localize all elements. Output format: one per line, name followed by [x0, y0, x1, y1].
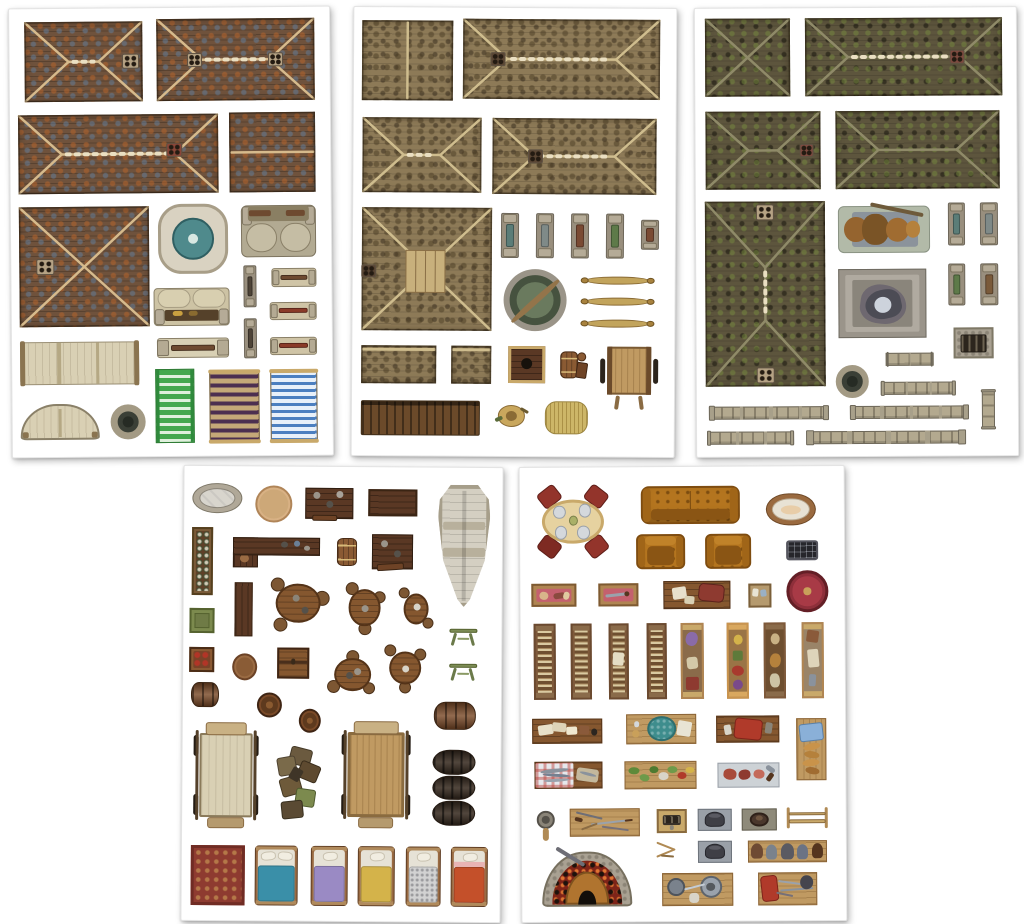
window-shutter-part: [503, 214, 516, 223]
stone-end-bench-part: [270, 304, 278, 318]
oval-stone-tub: [192, 483, 242, 513]
straw-hat-part: [519, 407, 528, 414]
moss-hip-roof-chimney-chimney: [800, 144, 814, 157]
wine-rack: [192, 527, 213, 595]
moss-hip-roof-ridges: [835, 110, 999, 189]
round-stone-well-inner: [123, 417, 134, 428]
open-wagon-part: [405, 730, 408, 820]
wooden-hatch-box-part: [521, 358, 532, 369]
shelf-with-provisions-part: [769, 653, 781, 668]
round-table-with-stools-stool: [385, 645, 397, 657]
helmet-rack-part: [781, 843, 793, 859]
stone-end-bench: [271, 268, 316, 287]
barrel-top: [257, 692, 282, 717]
covered-wagon-part: [254, 731, 257, 820]
shingle-gable-roof: [362, 20, 453, 101]
wooden-plank: [234, 582, 252, 636]
blue-striped-rug: [270, 370, 318, 442]
bookshelf-part: [536, 693, 554, 698]
vegetable-spread-table-part: [649, 766, 658, 773]
arched-canvas-awning-part: [23, 432, 29, 438]
leather-armchair-part: [638, 536, 645, 567]
metal-grate: [786, 540, 818, 560]
open-wagon-part: [342, 734, 347, 755]
green-folding-screen-part: [156, 370, 160, 442]
wooden-log-part: [580, 298, 589, 305]
bread-table-part: [804, 751, 820, 760]
helmet-rack-part: [812, 844, 823, 859]
wooden-rack-part: [787, 807, 790, 828]
shelf-with-papers-part: [809, 674, 817, 686]
stone-wall-short: [886, 353, 934, 366]
window-shutter-part: [503, 248, 516, 257]
round-stone-well: [111, 404, 146, 439]
shingle-hip-roof-chimney-chimney: [528, 149, 543, 163]
bed-fur-blanket-part: [407, 901, 440, 905]
stone-wall-long-part: [850, 405, 856, 420]
display-case-sword-part: [625, 592, 631, 598]
grindstone-part: [541, 816, 550, 824]
bookshelf: [571, 624, 592, 700]
meat-cutting-board: [717, 762, 779, 787]
wooden-handcart-part: [646, 347, 651, 395]
round-table-with-stools-top: [349, 589, 380, 626]
meat-cutting-board-part: [753, 769, 765, 779]
stone-wall-part: [790, 430, 794, 445]
round-red-table-center: [804, 588, 811, 595]
stone-end-bench-part: [279, 308, 308, 313]
bookshelf-part: [536, 626, 554, 631]
stone-end-bench-part: [308, 304, 316, 318]
wooden-handcart-part: [613, 395, 619, 410]
sword-table: [758, 872, 817, 905]
window-shutter: [243, 265, 256, 307]
green-trestle: [449, 627, 477, 647]
arched-canvas-awning-part: [92, 431, 98, 437]
wooden-handcart-part: [600, 359, 605, 384]
stone-wall-long-part: [880, 406, 884, 419]
moss-hip-roof-long-chimney: [949, 50, 964, 64]
shelf-with-potions-part: [729, 692, 747, 697]
window-shutter: [980, 263, 998, 305]
bellows-on-board: [698, 809, 732, 831]
ornate-red-rug: [191, 845, 245, 905]
fish-table-part: [542, 773, 570, 778]
covered-wagon-part: [207, 817, 243, 828]
bed-blue-blanket-part: [256, 846, 297, 850]
bronze-statue-plinth-part: [851, 212, 918, 247]
green-trestle-part: [457, 638, 469, 640]
stone-monument-part: [845, 274, 919, 332]
table-with-knitting-part: [648, 716, 677, 741]
round-stone-well: [836, 365, 869, 398]
window-shutter-part: [573, 249, 586, 258]
round-table-with-stools-mug: [346, 672, 353, 679]
purple-striped-rug: [209, 370, 260, 442]
round-wooden-table-inner: [259, 489, 288, 518]
round-table-with-stools-stool: [327, 680, 340, 693]
bread-table-part: [799, 722, 824, 742]
long-canvas-awning-part: [57, 343, 61, 384]
slate-hip-roof-small-chimney: [122, 54, 139, 69]
meat-cutting-board-part: [766, 772, 775, 782]
open-wagon-part: [347, 732, 404, 818]
crate-pile-part: [276, 755, 298, 777]
dining-table-set-part: [553, 505, 566, 518]
round-table-with-stools: [399, 588, 432, 629]
table-with-mugs-part: [327, 500, 334, 507]
shelf-with-potions-part: [731, 665, 744, 677]
stone-fire-grate-part: [962, 336, 985, 351]
table-with-mugs-part: [381, 540, 388, 547]
round-table-with-stools-stool: [345, 582, 358, 595]
covered-wagon-part: [199, 733, 253, 818]
bronze-statue-plinth-part: [844, 217, 868, 242]
shield-table-part: [707, 882, 715, 890]
kettle-on-board: [742, 808, 777, 830]
helmet-rack-part: [797, 844, 809, 858]
vegetable-spread-table-part: [667, 766, 677, 773]
shingle-awning-ridges: [361, 345, 436, 383]
bar-counter-top: [233, 537, 320, 556]
shelf-with-potions-part: [732, 680, 743, 691]
round-table-with-stools-top: [276, 583, 321, 623]
bed-purple-blanket-part: [312, 847, 347, 851]
bench-with-cushion-part: [671, 586, 687, 600]
oval-stone-tub-part: [199, 488, 236, 507]
table-with-red-cloth-part: [764, 722, 773, 734]
window-shutter-part: [953, 274, 961, 295]
bed-yellow-blanket-part: [369, 852, 384, 862]
stone-wall-long-part: [739, 407, 743, 420]
bookshelf-part: [573, 693, 590, 698]
leather-armchair-part: [714, 536, 743, 545]
stone-wall-part: [952, 381, 956, 396]
round-table-with-stools-stool: [399, 588, 410, 599]
green-folding-screen: [155, 369, 195, 443]
bronze-statue-plinth-part: [886, 218, 910, 242]
shingle-hip-roof-chimney-ridges: [492, 118, 656, 195]
barrel-top-inner: [261, 697, 277, 713]
oval-copper-tub-part: [772, 498, 811, 520]
dining-table-set-part: [542, 499, 604, 544]
stone-wall-short-part: [931, 352, 933, 367]
green-crate: [189, 608, 214, 633]
notice-board-part: [760, 589, 767, 597]
green-trestle-part: [451, 668, 458, 682]
slate-gable-roof-piece-ridges: [229, 112, 316, 193]
green-trestle-part: [457, 673, 469, 675]
sheet-red-slate-roofs: [8, 6, 334, 459]
display-case-pink: [531, 584, 576, 607]
bed-purple-blanket-part: [322, 852, 337, 862]
slate-hip-roof-long-chimney: [166, 142, 182, 157]
sword-table-part: [800, 876, 813, 890]
barrel-stack-part: [432, 801, 475, 826]
window-shutter-part: [573, 214, 586, 223]
shelf-with-provisions-part: [770, 633, 779, 645]
shingle-hip-roof-ridges: [362, 117, 481, 193]
grindstone-part: [537, 811, 555, 829]
bread-table-part: [805, 766, 820, 775]
stone-wall-long: [850, 405, 969, 419]
stone-wall-long-part: [847, 431, 852, 444]
stone-fountain-inner: [172, 217, 215, 260]
desk-with-papers-part: [552, 723, 566, 733]
shelf-with-papers-part: [804, 624, 822, 629]
sheet-tavern-storage: [180, 465, 503, 923]
shelf-with-provisions-part: [766, 691, 784, 696]
bed-red-blanket-part: [454, 862, 485, 867]
leather-sofa-part: [730, 488, 738, 522]
round-table-with-stools-stool: [399, 681, 411, 693]
shelf-with-provisions: [764, 622, 786, 698]
crate-pile-part: [278, 774, 303, 798]
desk-with-papers-part: [566, 726, 577, 735]
stone-wall-long-part: [806, 430, 814, 445]
window-shutter: [571, 213, 589, 258]
bronze-statue-plinth-part: [862, 214, 889, 246]
stone-wall-long-part: [925, 431, 930, 444]
table-with-red-cloth-part: [733, 717, 763, 741]
window-shutter-part: [951, 296, 964, 304]
leather-armchair-part: [645, 536, 676, 545]
bread-table-part: [802, 759, 819, 768]
wooden-chest-part: [279, 661, 307, 664]
stone-arm-sofa: [241, 205, 316, 258]
bench-with-cushion: [663, 581, 730, 609]
shelf-with-provisions-part: [769, 673, 780, 688]
bed-purple-blanket-part: [314, 865, 345, 902]
table-with-knitting-part: [634, 721, 639, 727]
bed-yellow-blanket-part: [359, 847, 394, 851]
window-shutter-part: [950, 236, 963, 244]
round-table-with-stools-stool: [414, 648, 426, 660]
stone-arm-sofa-part: [248, 206, 309, 222]
shelf-with-cloth-goods-part: [686, 657, 699, 670]
bed-yellow-blanket: [358, 846, 395, 906]
table-with-knitting-part: [676, 720, 692, 737]
stone-monument: [838, 269, 926, 338]
barrel-and-crates-stack-part: [577, 352, 586, 362]
sheet-interior-smithy: [519, 465, 848, 923]
stone-wall-part: [707, 431, 711, 446]
purple-striped-rug-part: [208, 369, 260, 374]
tool-table: [570, 808, 640, 836]
shingle-awning-small: [451, 346, 491, 384]
stone-fire-grate: [954, 327, 994, 358]
fish-table-part: [576, 767, 600, 782]
oval-copper-tub-part: [781, 505, 800, 514]
stone-end-bench-part: [157, 340, 169, 356]
rowboat-part: [443, 548, 485, 557]
desk-with-papers-part: [591, 729, 597, 735]
slate-hip-roof-long: [18, 114, 219, 195]
window-shutter: [980, 202, 998, 245]
crank-sign-frame: [657, 809, 687, 833]
stone-monument-part: [852, 280, 912, 327]
wooden-log-part: [646, 298, 655, 305]
bed-blue-blanket: [255, 845, 298, 905]
bookshelf-part: [538, 631, 552, 693]
shingle-pyramid-roof-hatch-chimney: [361, 264, 376, 278]
wooden-log-part: [586, 319, 649, 328]
covered-wagon: [193, 722, 259, 828]
shield-table-part: [684, 884, 705, 892]
window-shutter-part: [538, 214, 551, 223]
window-shutter-part: [246, 350, 255, 358]
leather-sofa: [641, 486, 740, 525]
table-with-knitting-part: [633, 731, 640, 738]
covered-wagon-part: [194, 735, 199, 756]
window-shutter-half-part: [646, 228, 654, 243]
wooden-rack-part: [789, 812, 826, 816]
shelf-with-cloth-goods: [681, 623, 704, 699]
forge-hearth-part: [565, 872, 610, 905]
hay-bale: [545, 401, 588, 434]
stone-end-bench: [270, 337, 317, 355]
bed-blue-blanket-part: [260, 851, 276, 861]
vegetable-spread-table: [624, 761, 696, 789]
moss-hip-roof-tall-ridges: [705, 201, 826, 387]
stone-arm-sofa-part: [249, 210, 271, 216]
long-canvas-awning-part: [20, 342, 25, 386]
stone-wall-short-part: [886, 352, 888, 367]
bookshelf-with-paper-part: [613, 630, 626, 692]
window-shutter: [606, 214, 624, 259]
slate-hip-roof-wide-chimney: [267, 52, 282, 66]
sheet-mossy-roofs: [694, 6, 1019, 458]
shelf-with-potions-part: [729, 625, 747, 630]
wooden-chest-part: [291, 658, 296, 664]
stone-wall-part: [881, 381, 885, 396]
blue-striped-rug-part: [270, 439, 319, 444]
long-canvas-awning-part: [134, 341, 139, 385]
blue-striped-rug-part: [269, 369, 318, 374]
shield-table-part: [700, 876, 722, 898]
slate-hip-roof-long-ridges: [18, 114, 219, 195]
asset-sheet-board: [0, 0, 1024, 924]
green-crate-part: [194, 612, 210, 628]
display-case-pink-part: [553, 592, 566, 599]
crate-pile-part: [287, 745, 312, 768]
bookshelf-part: [575, 631, 588, 693]
apple-crate: [189, 647, 214, 672]
notice-board-part: [752, 588, 759, 597]
stone-end-bench: [157, 337, 229, 358]
leather-armchair-part: [742, 536, 749, 567]
bed-blue-blanket-part: [258, 865, 294, 902]
stone-wall-long-part: [958, 429, 966, 444]
bed-blue-blanket-part: [277, 851, 293, 861]
tool-table-part: [576, 811, 603, 819]
display-case-sword-part: [603, 588, 633, 602]
crate-pile: [276, 748, 322, 821]
long-canvas-awning: [20, 341, 139, 385]
bed-purple-blanket-part: [314, 850, 345, 902]
open-wagon-part: [341, 794, 346, 815]
stone-wall-part: [764, 431, 767, 444]
stone-monument-part: [862, 286, 904, 322]
round-table-with-stools: [344, 584, 384, 631]
fish-table-part: [535, 763, 573, 788]
cream-sofa: [153, 287, 229, 326]
leather-sofa-part: [650, 509, 730, 520]
well-with-sweep-inner: [517, 282, 554, 318]
window-shutter-half-part: [643, 243, 656, 249]
round-table-with-stools-stool: [358, 622, 371, 635]
window-shutter-part: [247, 328, 253, 348]
bookshelf-with-paper: [609, 623, 629, 699]
wooden-rack-part: [789, 819, 826, 823]
meat-cutting-board-part: [765, 765, 776, 775]
green-trestle: [449, 662, 477, 682]
covered-wagon-part: [205, 722, 247, 735]
window-shutter-part: [985, 213, 993, 234]
moss-hip-roof-tall-chimney: [757, 367, 775, 383]
round-table-with-stools: [269, 577, 326, 628]
sword-table-part: [779, 880, 813, 887]
green-trestle-part: [451, 633, 458, 647]
straw-hat: [495, 404, 530, 428]
moss-hip-roof: [835, 110, 999, 189]
bed-fur-blanket-part: [409, 866, 438, 903]
shelf-with-papers-part: [807, 649, 819, 668]
stone-wall: [881, 381, 956, 394]
round-table-with-stools-stool: [315, 591, 330, 606]
window-shutter-part: [982, 264, 995, 272]
tool-table-part: [601, 826, 628, 831]
wooden-log-part: [580, 277, 589, 284]
bellows-on-board-part: [705, 844, 726, 859]
shelf-with-potions-part: [732, 651, 743, 661]
bronze-statue-plinth-part: [906, 221, 920, 237]
shelf-with-cloth-goods-part: [683, 625, 702, 630]
slate-gable-roof-piece: [229, 112, 316, 193]
round-red-table: [786, 570, 828, 612]
dining-table-set: [538, 484, 608, 558]
bellows-on-board: [698, 841, 732, 863]
dining-table-set-part: [536, 483, 563, 510]
green-trestle-part: [449, 628, 477, 633]
vegetable-spread-table-part: [628, 767, 639, 775]
green-trestle-part: [469, 633, 476, 647]
bellows-on-board-part: [708, 814, 721, 818]
bed-purple-blanket-part: [312, 901, 347, 905]
fish-table-part: [543, 778, 570, 783]
open-wagon: [341, 721, 411, 828]
bed-red-blanket-part: [462, 853, 477, 863]
open-wagon-part: [406, 734, 411, 755]
stone-wall-vertical-part: [981, 390, 996, 392]
stone-arm-sofa-part: [246, 223, 277, 252]
plain-table: [368, 489, 417, 516]
well-with-sweep-pole: [510, 277, 561, 323]
straw-hat-part: [498, 405, 525, 426]
cream-sofa-part: [172, 311, 182, 315]
wine-rack-part: [195, 531, 209, 591]
a-frame-easel-part: [656, 842, 675, 851]
green-folding-screen-part: [190, 370, 194, 442]
meat-cutting-board-part: [738, 769, 751, 780]
stone-end-bench-part: [308, 270, 315, 285]
covered-wagon-part: [254, 735, 259, 756]
stone-wall-part: [736, 432, 739, 445]
shelf-with-papers: [802, 622, 824, 698]
window-shutter-part: [538, 249, 551, 258]
bed-red-blanket-part: [454, 866, 485, 903]
round-table-with-stools-stool: [363, 682, 375, 694]
